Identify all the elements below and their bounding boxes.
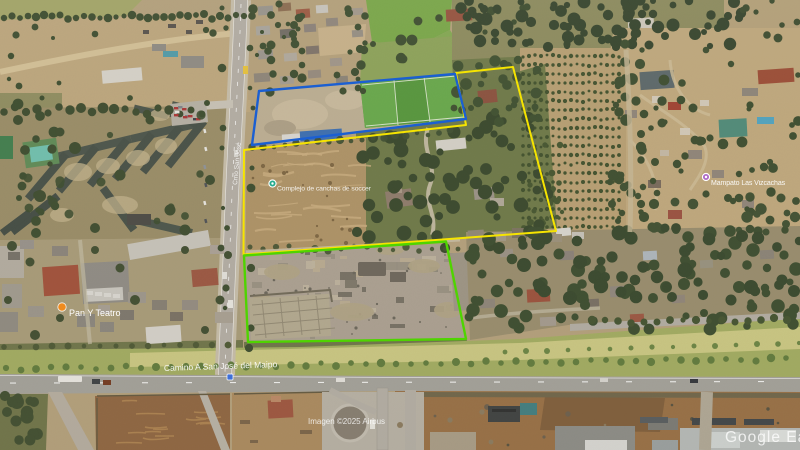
svg-text:Complejo de canchas de soccer: Complejo de canchas de soccer [277,186,372,193]
svg-text:Mampato Las Vizcachas: Mampato Las Vizcachas [711,180,786,187]
svg-text:Google Ea: Google Ea [725,429,800,446]
svg-text:Pan Y Teatro: Pan Y Teatro [69,308,121,318]
svg-text:Imagen ©2025 Airbus: Imagen ©2025 Airbus [308,417,385,426]
